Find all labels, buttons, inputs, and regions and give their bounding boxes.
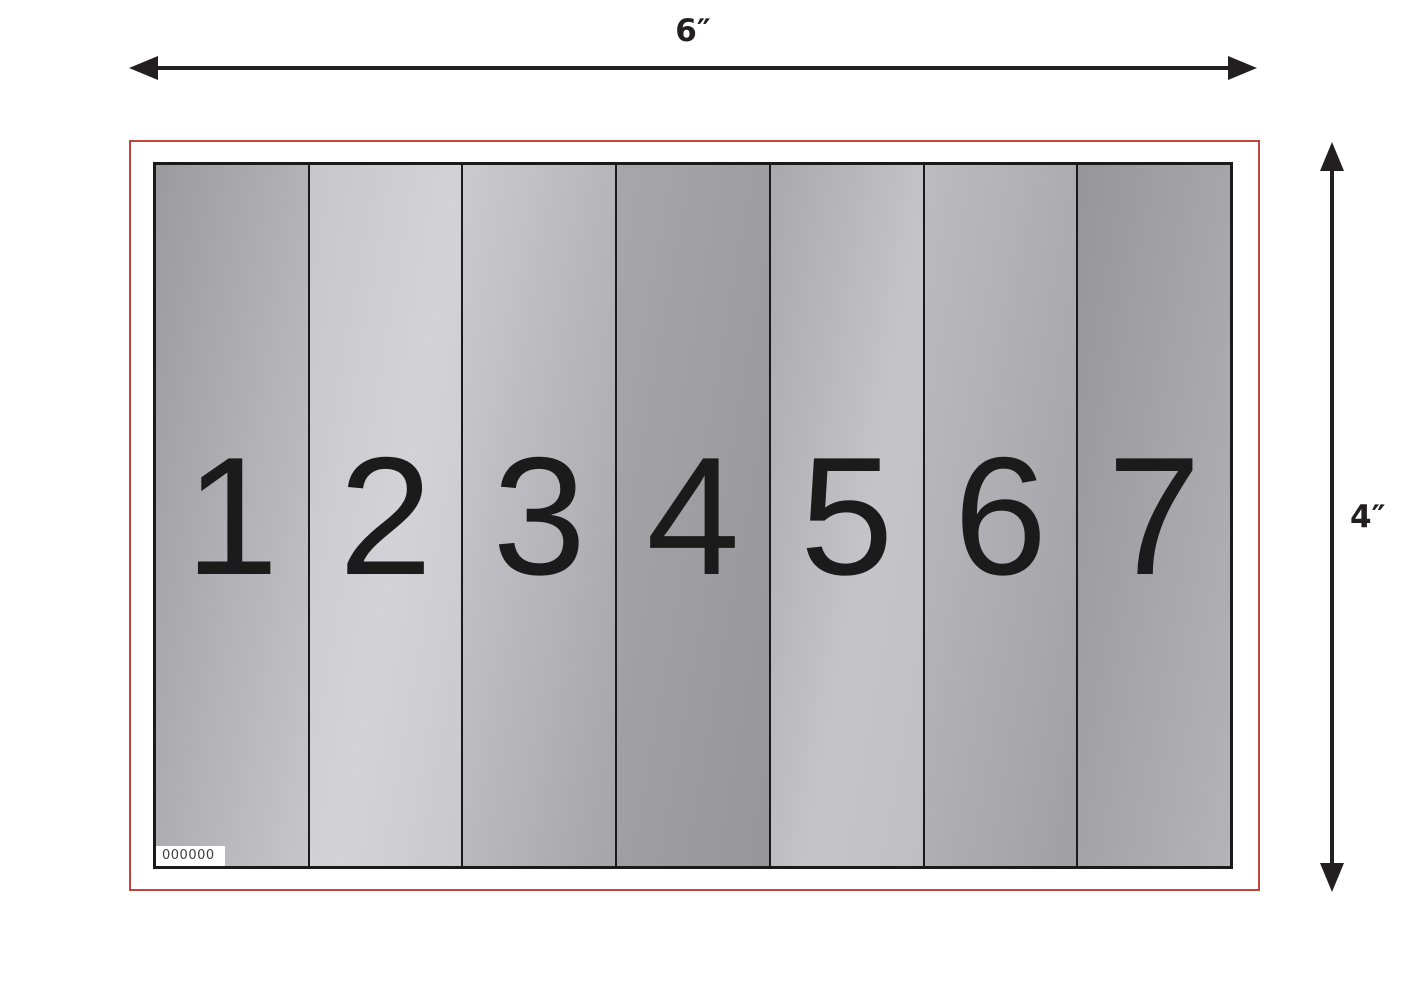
panel-4: 4 [615, 165, 769, 866]
panel-5: 5 [769, 165, 923, 866]
panel-number: 3 [493, 432, 586, 600]
arrowhead-up-icon [1320, 142, 1344, 171]
height-dimension-label: 4″ [1350, 500, 1385, 534]
panel-number: 6 [954, 432, 1047, 600]
panel-6: 6 [923, 165, 1077, 866]
panel-strip: 000000 1234567 [153, 162, 1233, 869]
panel-1: 1 [156, 165, 308, 866]
serial-number: 000000 [156, 846, 225, 866]
panel-number: 2 [339, 432, 432, 600]
panel-number: 7 [1107, 432, 1200, 600]
panel-number: 1 [185, 432, 278, 600]
vertical-double-arrow-icon [1318, 141, 1346, 893]
arrowhead-right-icon [1228, 56, 1257, 80]
panel-number: 4 [646, 432, 739, 600]
panel-7: 7 [1076, 165, 1230, 866]
arrowhead-left-icon [129, 56, 158, 80]
panel-2: 2 [308, 165, 462, 866]
width-dimension-label: 6″ [128, 14, 1258, 48]
horizontal-double-arrow-icon [128, 54, 1258, 82]
panel-number: 5 [800, 432, 893, 600]
fold-panel-diagram: 6″ 000000 1234567 4″ [0, 0, 1420, 984]
panel-3: 3 [461, 165, 615, 866]
arrowhead-down-icon [1320, 863, 1344, 892]
